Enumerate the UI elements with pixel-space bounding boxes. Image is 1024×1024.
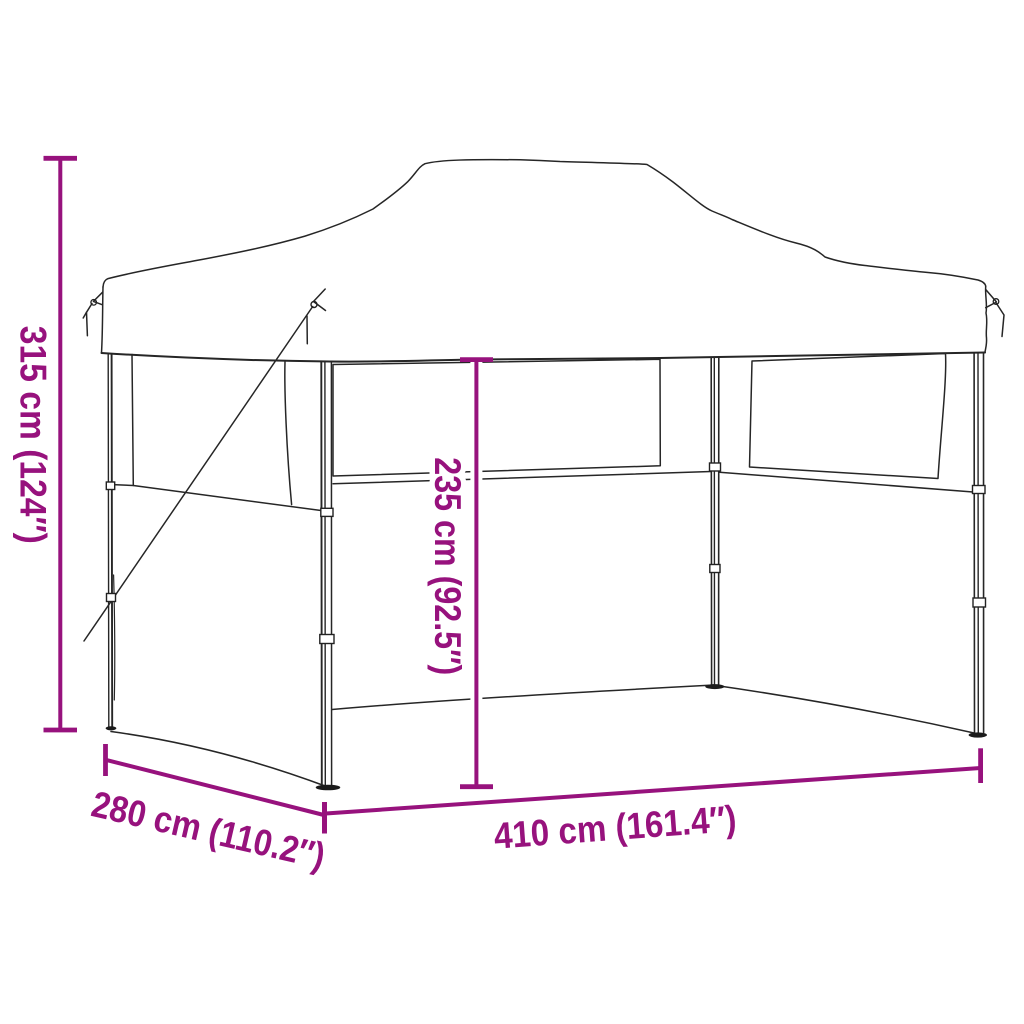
svg-text:235 cm (92.5″): 235 cm (92.5″) [427, 457, 468, 675]
svg-text:315 cm (124″): 315 cm (124″) [12, 326, 53, 544]
